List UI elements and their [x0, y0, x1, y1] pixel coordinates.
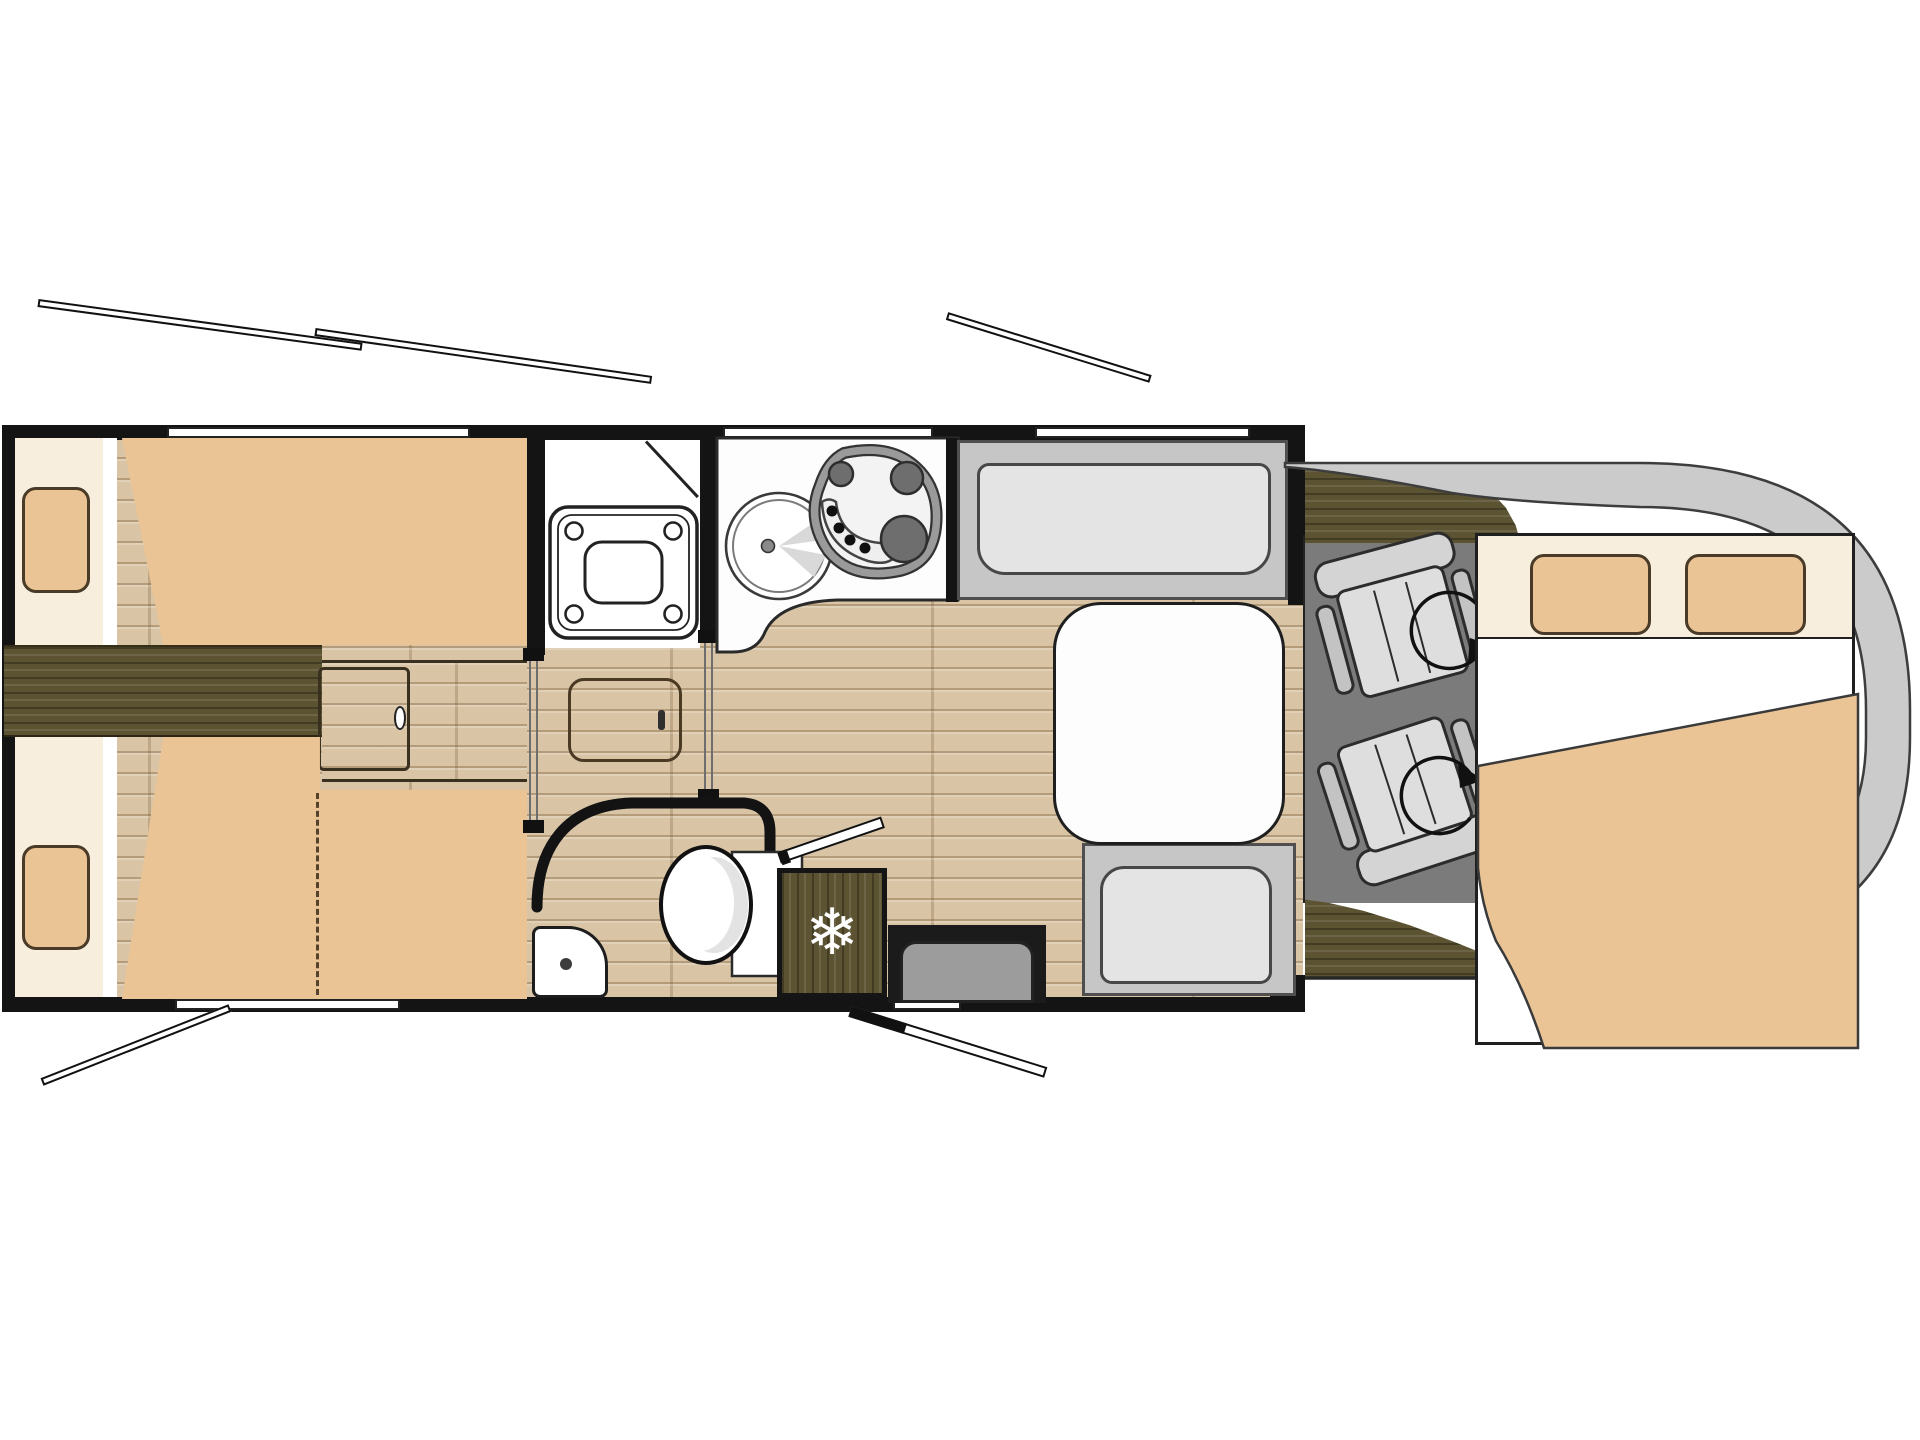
- fridge-door-hinge: [778, 849, 791, 865]
- pillow-top-bed: [22, 487, 90, 593]
- window-kitchen: [723, 427, 933, 438]
- overcab-pillow-left: [1530, 554, 1651, 635]
- bed-single-top: [117, 438, 527, 645]
- floorplan-canvas: ❄: [0, 0, 1920, 1440]
- shower-tray: [545, 500, 702, 647]
- dinette-table: [1053, 602, 1285, 845]
- dinette-bench-bottom-cushion: [1100, 866, 1272, 984]
- pillow-bottom-bed: [22, 845, 90, 950]
- bathroom-sliding-door: [704, 641, 713, 791]
- shower-wall-right: [700, 438, 717, 638]
- open-window-flap-rear-1: [37, 299, 362, 351]
- overcab-pillow-right: [1685, 554, 1806, 635]
- bed-walkway-walnut: [4, 645, 322, 737]
- basin-drain: [560, 958, 572, 970]
- headboard-strip-top: [103, 438, 117, 645]
- kitchen-hob: [810, 447, 948, 579]
- window-dinette: [1035, 427, 1250, 438]
- fridge: ❄: [777, 868, 887, 998]
- headboard-strip-bottom: [103, 737, 117, 997]
- bed-divider-dashed-line: [316, 793, 319, 995]
- window-rear-bed-top: [167, 427, 470, 438]
- open-window-flap-rear-2: [314, 328, 652, 384]
- open-window-flap-kitchen: [946, 312, 1152, 383]
- floor-hatch-handle: [658, 710, 665, 730]
- dinette-bench-top-cushion: [977, 463, 1271, 575]
- entry-door-open: [848, 1006, 1047, 1077]
- window-rear-bed-bottom: [175, 999, 400, 1010]
- bedroom-door-cap-top: [523, 648, 544, 661]
- open-window-flap-bottom: [41, 1004, 232, 1085]
- shower-wall-left: [527, 438, 545, 655]
- overcab-bed: [1475, 533, 1855, 1045]
- overcab-blanket: [1478, 636, 1858, 1048]
- bed-step-handle: [394, 706, 406, 730]
- entry-step-inner: [900, 941, 1034, 1003]
- fridge-snowflake-icon: ❄: [805, 901, 859, 965]
